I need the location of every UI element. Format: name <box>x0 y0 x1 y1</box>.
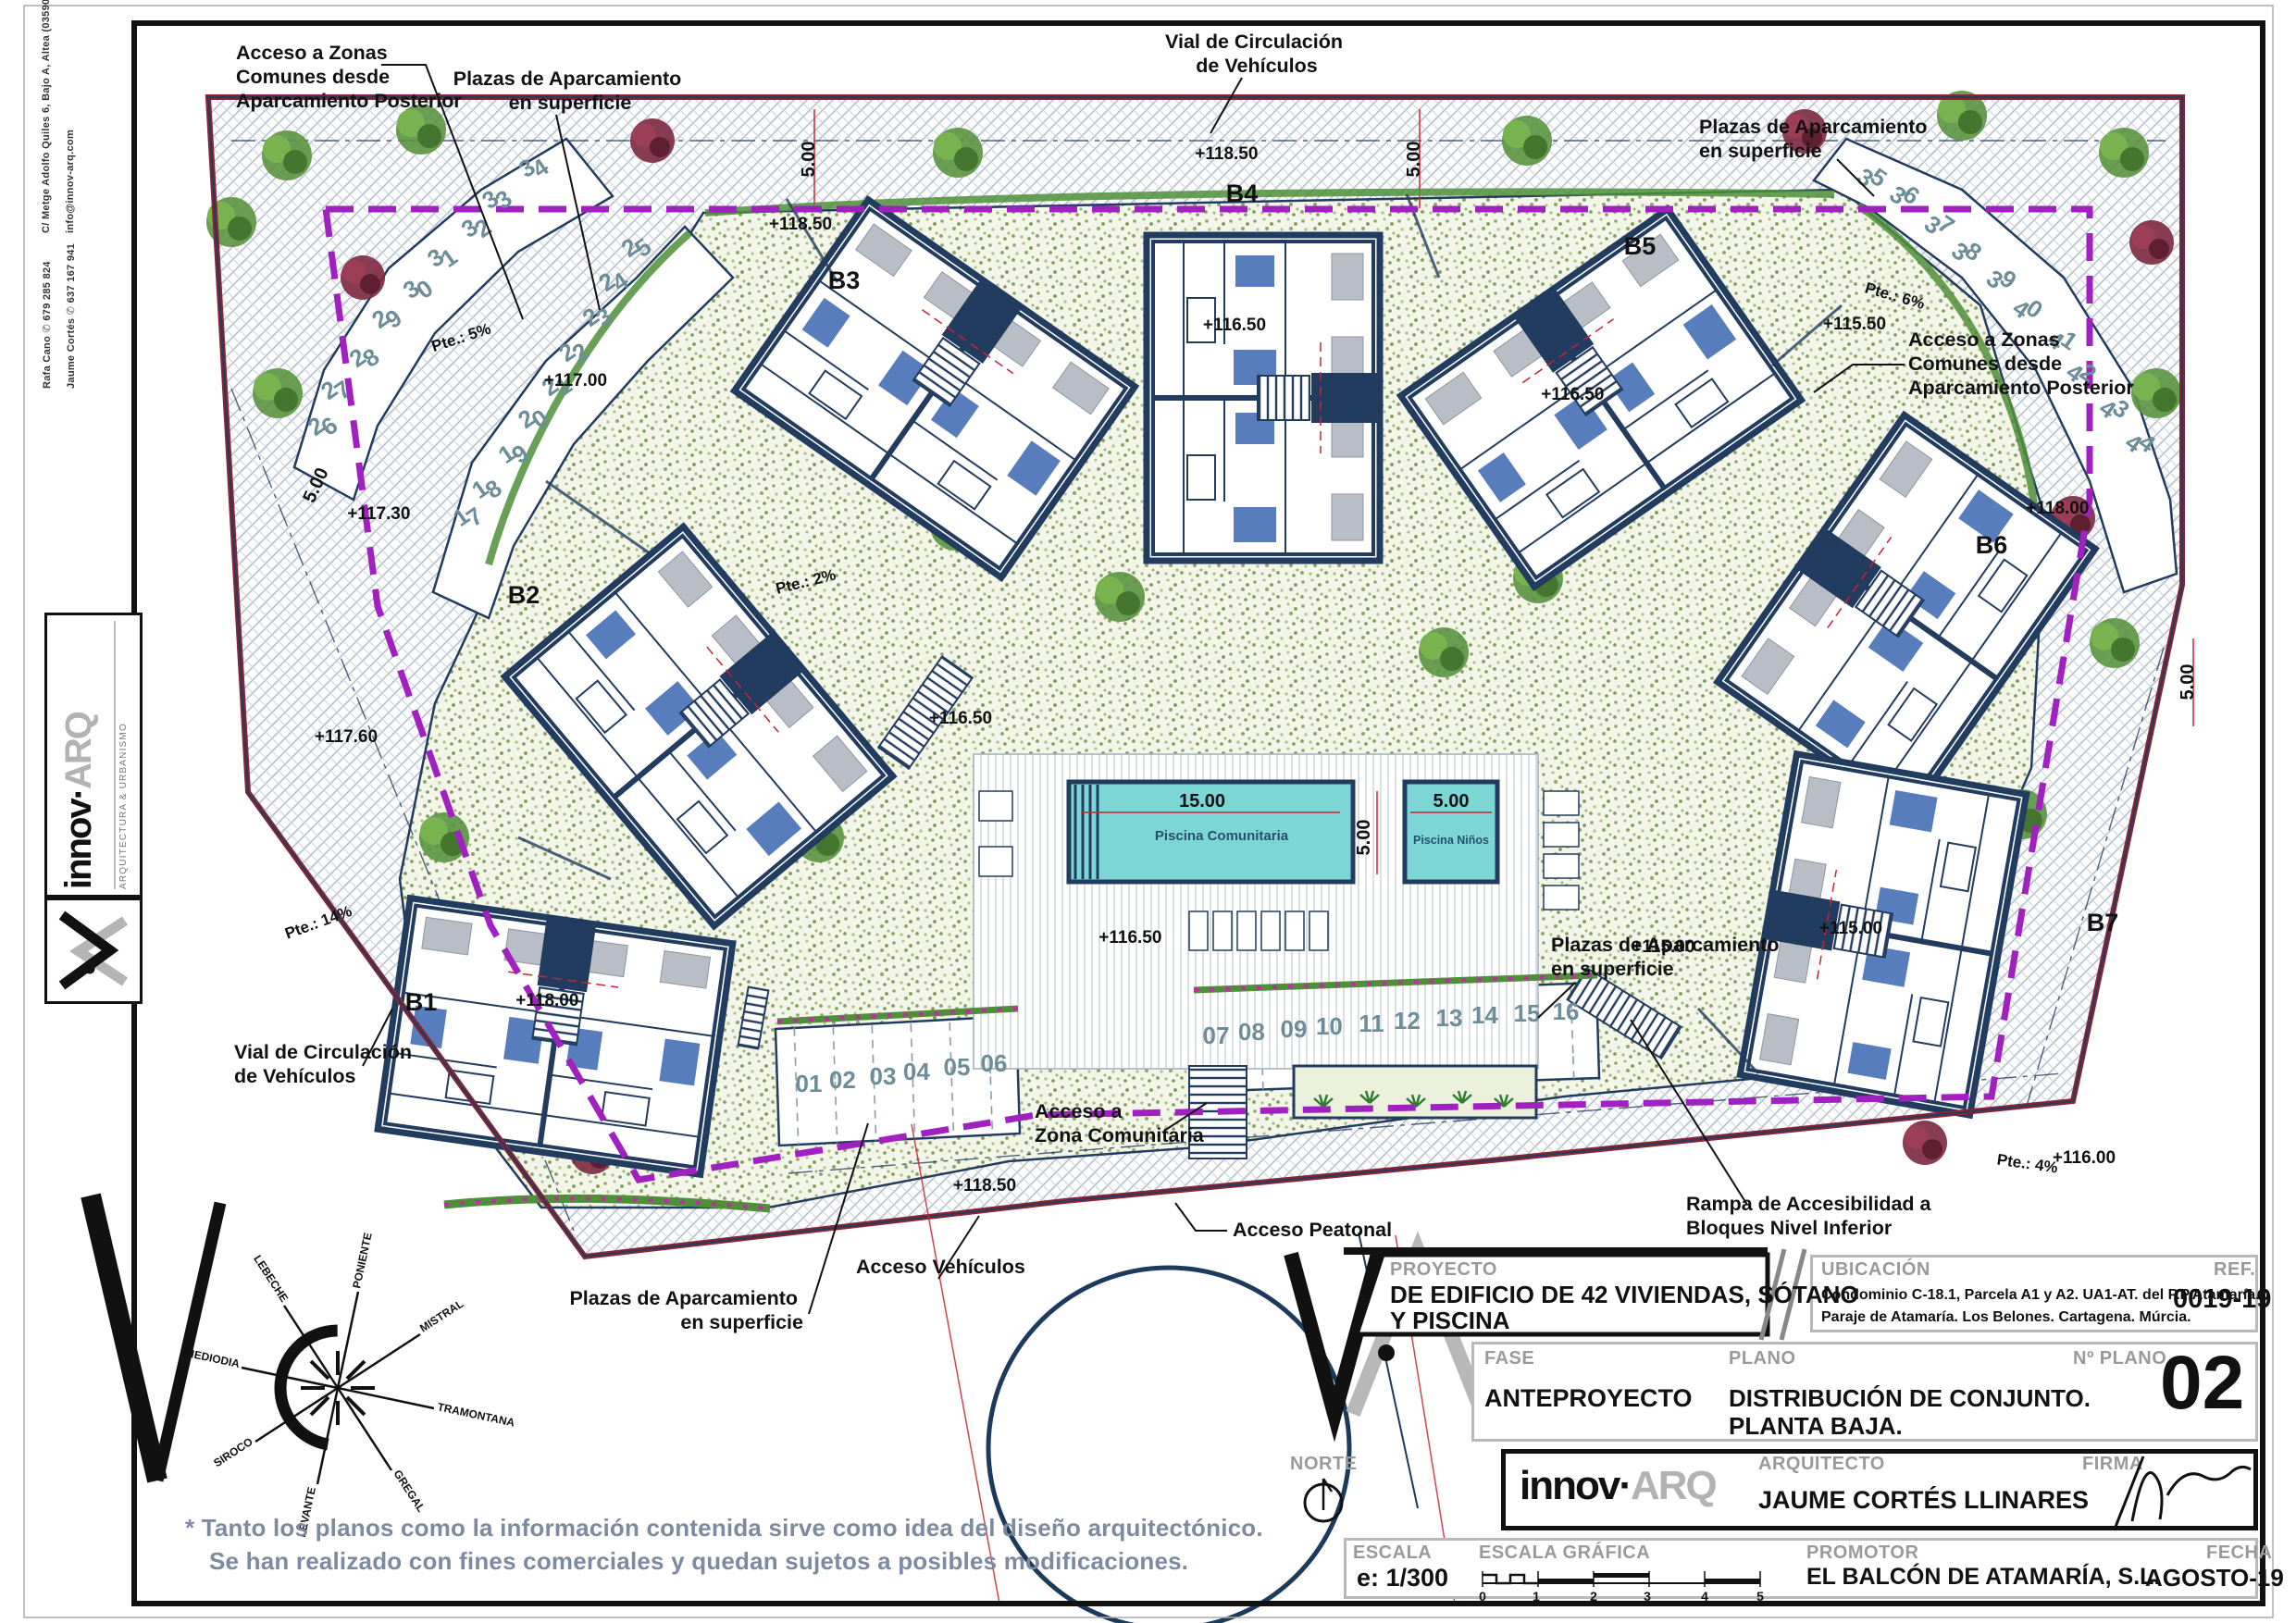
building-label-B5: B5 <box>1624 232 1657 260</box>
scale-tick-labels: 01 23 45 <box>1479 1589 1764 1604</box>
graphic-scale-bar: 01 23 45 <box>1475 1562 1771 1608</box>
dim-5m: 5.00 <box>2178 664 2198 700</box>
pool-kids-label: Piscina Niños <box>1413 834 1489 847</box>
contact-name: Rafa Cano <box>42 336 53 389</box>
signature <box>2110 1451 2258 1534</box>
building-label-B1: B1 <box>405 988 438 1016</box>
building-label-B7: B7 <box>2087 909 2119 936</box>
studio-email: info@innov-arq.com <box>65 130 76 233</box>
annotation-plazas-b: Plazas de Aparcamiento en superficie <box>569 1287 803 1333</box>
va-logo-icon <box>47 900 140 1001</box>
compass-label: SIROCO <box>211 1435 254 1470</box>
logo-innov: innov·ARQ <box>58 712 99 889</box>
site-area <box>206 91 2193 1257</box>
slope-label: Pte.: 4% <box>1996 1151 2059 1177</box>
building-label-B3: B3 <box>828 266 861 294</box>
fecha-label: FECHA <box>2206 1543 2272 1562</box>
arquitecto-label: ARQUITECTO <box>1758 1455 1885 1473</box>
disclaimer-line1: * Tanto los planos como la información c… <box>185 1516 1263 1540</box>
dim-5m: 5.00 <box>799 142 819 178</box>
dim-5m: 5.00 <box>1433 791 1470 811</box>
compass-label: MEDIODIA <box>184 1346 242 1370</box>
building-B4 <box>1147 235 1380 561</box>
building-label-B6: B6 <box>1976 531 2008 559</box>
arquitecto-value: JAUME CORTÉS LLINARES <box>1758 1488 2089 1513</box>
fase-label: FASE <box>1484 1349 1534 1368</box>
annotation-vial-top: Vial de Circulación de Vehículos <box>1165 31 1348 77</box>
contact-name: Jaume Cortés <box>66 318 77 389</box>
big-v-mark <box>91 1196 220 1481</box>
compass-rose-icon: TRAMONTANA GREGAL LEVANTE SIROCO MEDIODI… <box>184 1232 516 1539</box>
compass-label: PONIENTE <box>350 1232 374 1290</box>
disclaimer-line2: Se han realizado con fines comerciales y… <box>209 1549 1188 1573</box>
pool-main-label: Piscina Comunitaria <box>1155 828 1289 844</box>
annotation-acceso-peatonal: Acceso Peatonal <box>1233 1219 1392 1241</box>
annotation-rampa: Rampa de Accesibilidad a Bloques Nivel I… <box>1686 1193 1936 1239</box>
escala-label: ESCALA <box>1353 1543 1432 1562</box>
proyecto-label: PROYECTO <box>1390 1260 1497 1279</box>
phone-icon: ✆ <box>42 324 53 333</box>
studio-address: C/ Metge Adolfo Quiles 6, Bajo A, Altea … <box>41 0 52 233</box>
contact-phone: 679 285 824 <box>42 261 53 320</box>
innovarq-logo-box: innov·ARQ ARQUITECTURA & URBANISMO <box>44 613 143 898</box>
compass-label: LEBECHE <box>251 1253 291 1305</box>
plano-label: PLANO <box>1729 1349 1796 1368</box>
ubicacion-line2: Paraje de Atamaría. Los Belones. Cartage… <box>1821 1310 2191 1325</box>
fecha-value: AGOSTO-19 <box>2145 1566 2284 1590</box>
promotor-value: EL BALCÓN DE ATAMARÍA, S.L. <box>1806 1566 2160 1589</box>
fase-value: ANTEPROYECTO <box>1484 1386 1693 1411</box>
contact-1: Rafa Cano ✆ 679 285 824 <box>41 261 53 389</box>
nplano-label: Nº PLANO <box>2073 1349 2166 1368</box>
contact-phone: 637 167 941 <box>66 243 77 303</box>
innovarq-logo: innov·ARQ <box>1520 1466 1716 1506</box>
slope-label: Pte.: 14% <box>282 902 354 943</box>
escala-value: e: 1/300 <box>1357 1566 1448 1591</box>
plano-line1: DISTRIBUCIÓN DE CONJUNTO. <box>1729 1386 2091 1410</box>
dim-5m: 5.00 <box>1404 142 1424 178</box>
nplano-value: 02 <box>2160 1347 2244 1419</box>
annotation-acceso-zonas-tl: Acceso a Zonas Comunes desde Aparcamient… <box>236 42 462 112</box>
proyecto-line2: Y PISCINA <box>1390 1308 1510 1332</box>
ubicacion-label: UBICACIÓN <box>1821 1260 1930 1279</box>
dim-15m: 15.00 <box>1179 791 1225 811</box>
building-label-B2: B2 <box>508 581 540 609</box>
compass-label: GREGAL <box>391 1468 428 1515</box>
dim-5m: 5.00 <box>1354 820 1374 856</box>
ref-label: REF. <box>2214 1260 2255 1279</box>
plano-line2: PLANTA BAJA. <box>1729 1414 1903 1438</box>
drawing-sheet: TRAMONTANA GREGAL LEVANTE SIROCO MEDIODI… <box>0 0 2296 1623</box>
compass-label: TRAMONTANA <box>436 1400 515 1429</box>
escala-grafica-label: ESCALA GRÁFICA <box>1479 1543 1650 1562</box>
promotor-label: PROMOTOR <box>1806 1543 1918 1562</box>
phone-icon: ✆ <box>66 306 77 316</box>
logo-subtitle: ARQUITECTURA & URBANISMO <box>114 621 129 889</box>
norte-label: NORTE <box>1290 1455 1358 1473</box>
va-logo-box <box>44 898 143 1004</box>
proyecto-line1: DE EDIFICIO DE 42 VIVIENDAS, SÓTANO <box>1390 1282 1859 1307</box>
building-label-B4: B4 <box>1226 180 1259 207</box>
north-symbol-icon <box>1296 1473 1351 1532</box>
contact-2: Jaume Cortés ✆ 637 167 941 <box>65 243 77 389</box>
ref-value: 0019-19 <box>2173 1286 2271 1313</box>
compass-label: MISTRAL <box>417 1297 465 1335</box>
